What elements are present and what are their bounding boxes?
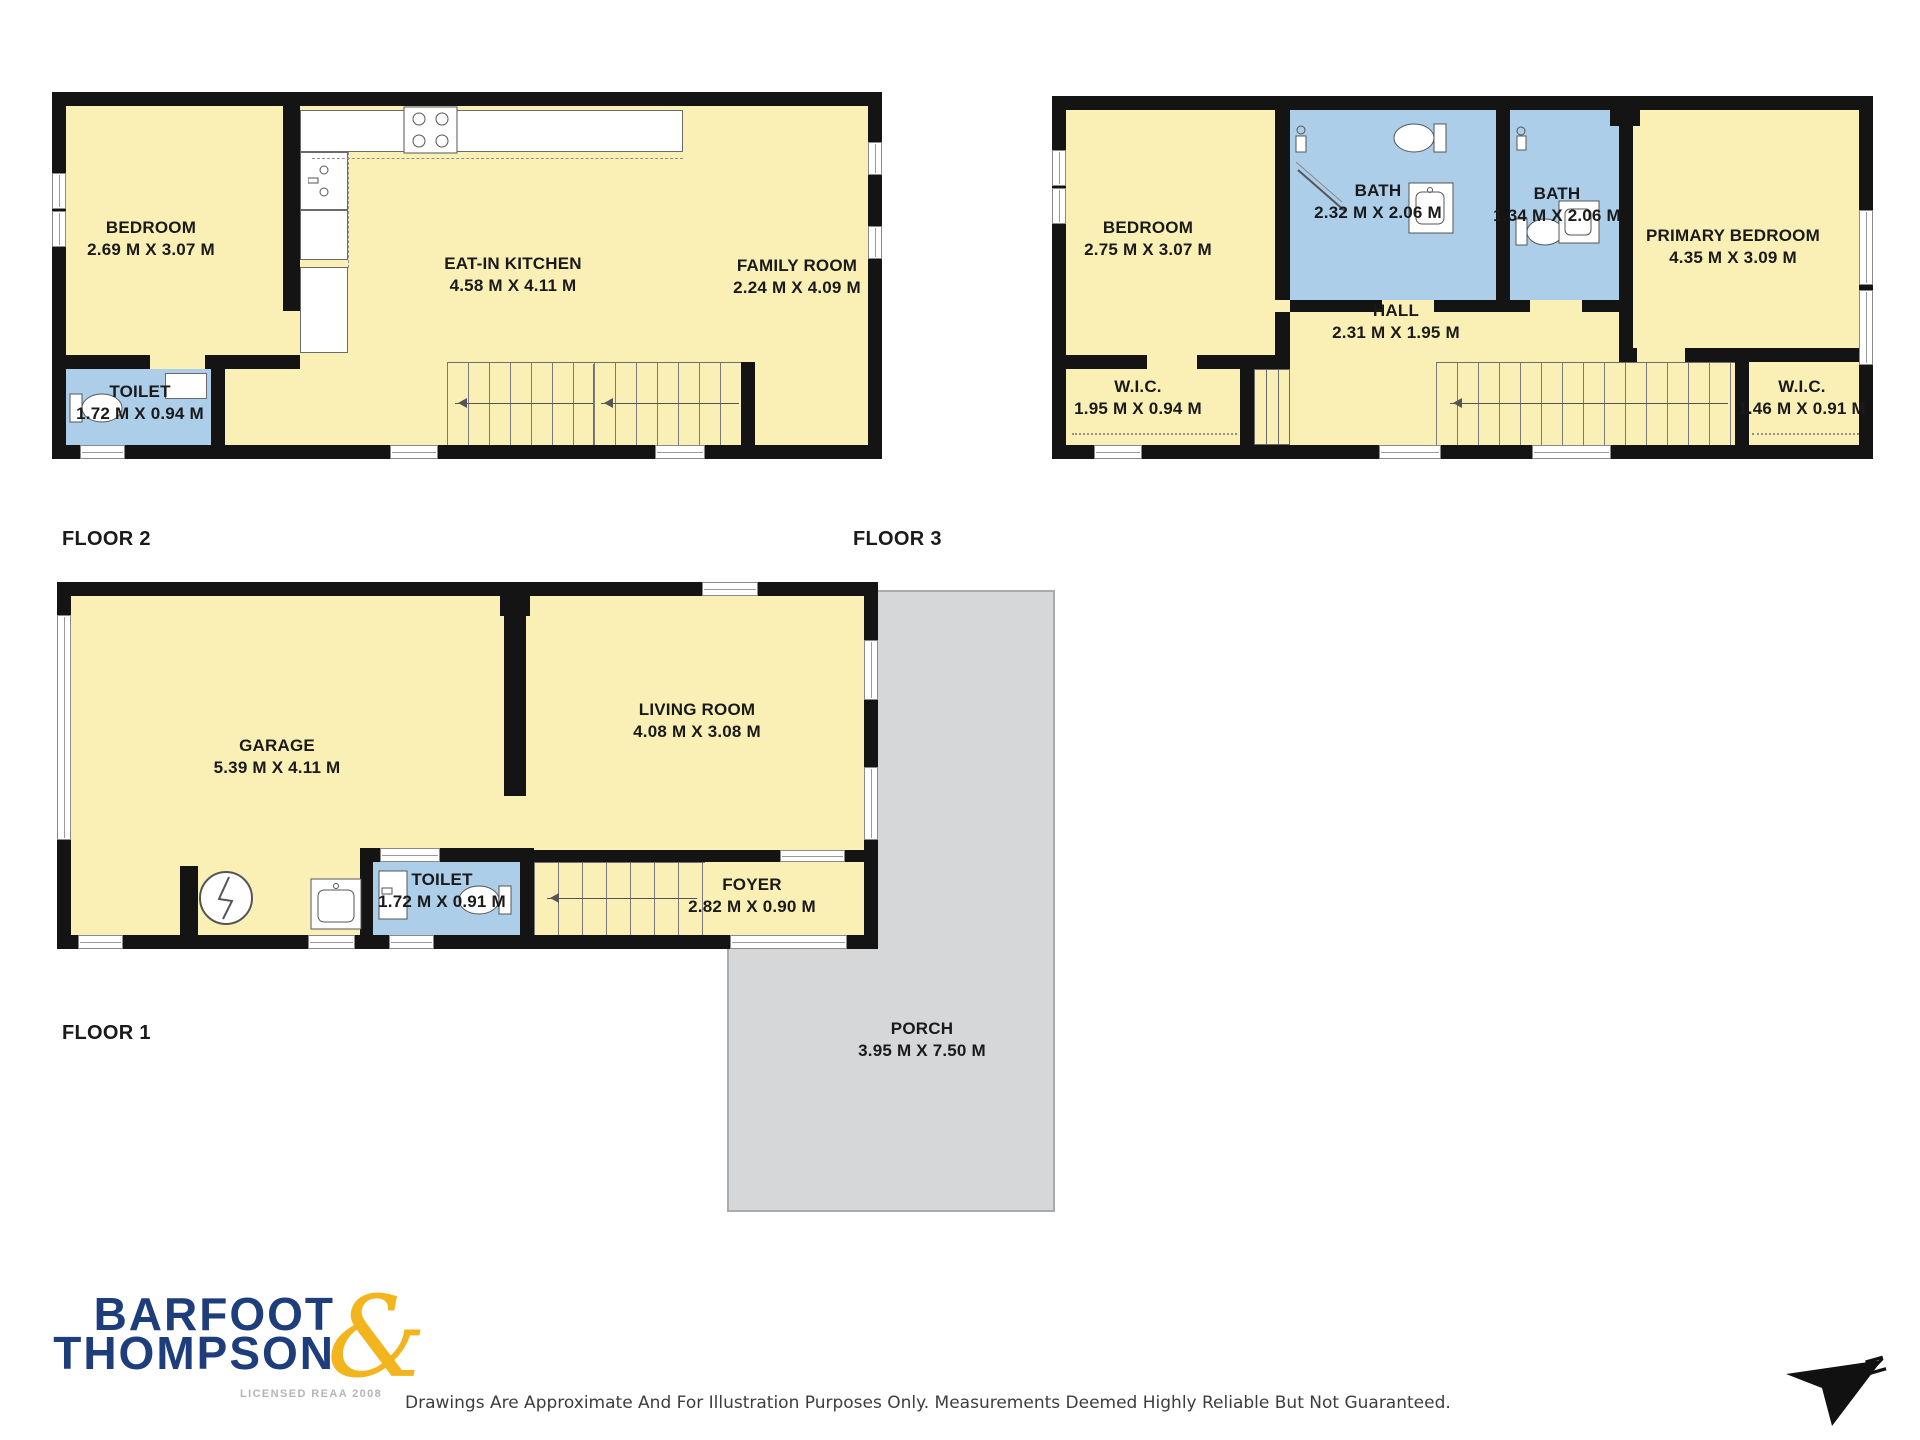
window [308, 935, 355, 949]
room-dims: 1.46 M X 0.91 M [1738, 398, 1866, 420]
floorplan-canvas: PORCH 3.95 M X 7.50 M [0, 0, 1920, 1440]
room-name: BEDROOM [1084, 217, 1212, 239]
room-dims: 2.75 M X 3.07 M [1084, 239, 1212, 261]
counter-dashed-line [312, 158, 683, 159]
window [390, 445, 438, 459]
window [389, 935, 434, 949]
room-label-bedroom-f2: BEDROOM 2.69 M X 3.07 M [87, 217, 215, 261]
room-name: HALL [1332, 300, 1460, 322]
window [868, 142, 882, 175]
room-dims: 1.72 M X 0.94 M [76, 403, 204, 425]
wall [180, 866, 198, 935]
floor-3-plan: BEDROOM 2.75 M X 3.07 M BATH 2.32 M X 2.… [1052, 96, 1873, 459]
wall [741, 362, 755, 445]
sliding-door [864, 767, 878, 840]
window [78, 935, 123, 949]
door-opening [380, 848, 440, 862]
room-name: W.I.C. [1074, 376, 1202, 398]
counter-dashed-line [348, 152, 349, 268]
water-heater-icon [197, 869, 255, 927]
window [868, 226, 882, 259]
logo-line2: THOMPSON [45, 1334, 335, 1373]
room-dims: 2.32 M X 2.06 M [1314, 202, 1442, 224]
room-dims: 1.95 M X 0.94 M [1074, 398, 1202, 420]
room-name: BATH [1493, 183, 1621, 205]
room-label-wic-left: W.I.C. 1.95 M X 0.94 M [1074, 376, 1202, 420]
room-dims: 4.58 M X 4.11 M [444, 275, 582, 297]
floor-3-label: FLOOR 3 [853, 528, 942, 551]
floor-2-label: FLOOR 2 [62, 528, 151, 551]
room-name: FOYER [688, 874, 816, 896]
garage-door [57, 615, 71, 840]
room-dims: 4.08 M X 3.08 M [633, 721, 761, 743]
window [80, 445, 125, 459]
wall [1240, 369, 1254, 445]
window [1379, 445, 1441, 459]
room-label-wic-right: W.I.C. 1.46 M X 0.91 M [1738, 376, 1866, 420]
room-label-porch: PORCH 3.95 M X 7.50 M [858, 1018, 986, 1062]
room-name: FAMILY ROOM [733, 255, 861, 277]
room-dims: 2.24 M X 4.09 M [733, 277, 861, 299]
floor-1-label: FLOOR 1 [62, 1022, 151, 1045]
room-label-toilet-f1: TOILET 1.72 M X 0.91 M [378, 869, 506, 913]
room-label-living-room: LIVING ROOM 4.08 M X 3.08 M [633, 699, 761, 743]
window [1532, 445, 1611, 459]
room-name: LIVING ROOM [633, 699, 761, 721]
wall [864, 582, 878, 949]
room-dims: 1.72 M X 0.91 M [378, 891, 506, 913]
room-dims: 4.35 M X 3.09 M [1646, 247, 1820, 269]
stair-direction-arrow [455, 403, 593, 404]
room-label-hall: HALL 2.31 M X 1.95 M [1332, 300, 1460, 344]
room-label-primary-bedroom: PRIMARY BEDROOM 4.35 M X 3.09 M [1646, 225, 1820, 269]
room-dims: 1.34 M X 2.06 M [1493, 205, 1621, 227]
room-label-family-room: FAMILY ROOM 2.24 M X 4.09 M [733, 255, 861, 299]
wall [1052, 445, 1873, 459]
laundry-tub-icon [310, 878, 362, 930]
stove-icon [403, 106, 458, 154]
room-label-bath1: BATH 2.32 M X 2.06 M [1314, 180, 1442, 224]
door-opening [150, 355, 205, 369]
window [1052, 188, 1066, 224]
closet-rail [1752, 433, 1859, 435]
room-label-kitchen: EAT-IN KITCHEN 4.58 M X 4.11 M [444, 253, 582, 297]
room-dims: 2.82 M X 0.90 M [688, 896, 816, 918]
door-opening [1147, 355, 1197, 369]
room-name: BEDROOM [87, 217, 215, 239]
wall [504, 596, 526, 796]
room-dims: 2.69 M X 3.07 M [87, 239, 215, 261]
stair-direction-arrow [547, 898, 697, 899]
logo-ampersand: & [327, 1282, 427, 1394]
room-dims: 5.39 M X 4.11 M [214, 757, 341, 779]
room-name: BATH [1314, 180, 1442, 202]
linen-closet [1254, 369, 1290, 445]
pantry-closet [300, 267, 348, 353]
wall [1275, 110, 1290, 300]
closet-rail [1072, 433, 1237, 435]
door-opening [702, 582, 758, 596]
window [1859, 210, 1873, 285]
room-name: EAT-IN KITCHEN [444, 253, 582, 275]
room-dims: 2.31 M X 1.95 M [1332, 322, 1460, 344]
floor-1-plan: GARAGE 5.39 M X 4.11 M LIVING ROOM 4.08 … [57, 582, 878, 949]
stair-direction-arrow [601, 403, 739, 404]
room-name: PORCH [858, 1018, 986, 1040]
window [780, 850, 845, 862]
room-dims: 3.95 M X 7.50 M [858, 1040, 986, 1062]
window [1052, 150, 1066, 186]
faucet-icon [1514, 124, 1530, 158]
room-name: TOILET [76, 381, 204, 403]
door-opening [1637, 348, 1685, 362]
stair-divider [593, 364, 594, 445]
window [730, 935, 847, 949]
window [52, 211, 66, 247]
window [1094, 445, 1142, 459]
wall [1619, 110, 1633, 348]
room-label-garage: GARAGE 5.39 M X 4.11 M [214, 735, 341, 779]
room-name: W.I.C. [1738, 376, 1866, 398]
toilet-icon [1390, 118, 1448, 158]
wall [1052, 96, 1873, 110]
window [1859, 290, 1873, 365]
wall [52, 92, 66, 459]
room-label-toilet-f2: TOILET 1.72 M X 0.94 M [76, 381, 204, 425]
wall [211, 369, 225, 445]
window [655, 445, 705, 459]
license-text: LICENSED REAA 2008 [240, 1388, 382, 1400]
kitchen-cabinet [300, 210, 348, 260]
kitchen-counter [300, 110, 683, 152]
room-label-bath2: BATH 1.34 M X 2.06 M [1493, 183, 1621, 227]
room-label-bedroom-f3: BEDROOM 2.75 M X 3.07 M [1084, 217, 1212, 261]
disclaimer-text: Drawings Are Approximate And For Illustr… [405, 1393, 1451, 1413]
floor-2-plan: BEDROOM 2.69 M X 3.07 M EAT-IN KITCHEN 4… [52, 92, 882, 459]
door-opening [1530, 300, 1582, 312]
room-name: PRIMARY BEDROOM [1646, 225, 1820, 247]
window [864, 640, 878, 700]
wall [520, 862, 534, 935]
stair-direction-arrow [1450, 403, 1728, 404]
wall [52, 92, 882, 106]
room-name: GARAGE [214, 735, 341, 757]
room-label-foyer: FOYER 2.82 M X 0.90 M [688, 874, 816, 918]
window [52, 173, 66, 209]
agency-logo: BARFOOT THOMPSON [45, 1295, 335, 1373]
room-name: TOILET [378, 869, 506, 891]
wall [52, 445, 882, 459]
sink-icon [308, 158, 340, 204]
wall [283, 106, 300, 311]
